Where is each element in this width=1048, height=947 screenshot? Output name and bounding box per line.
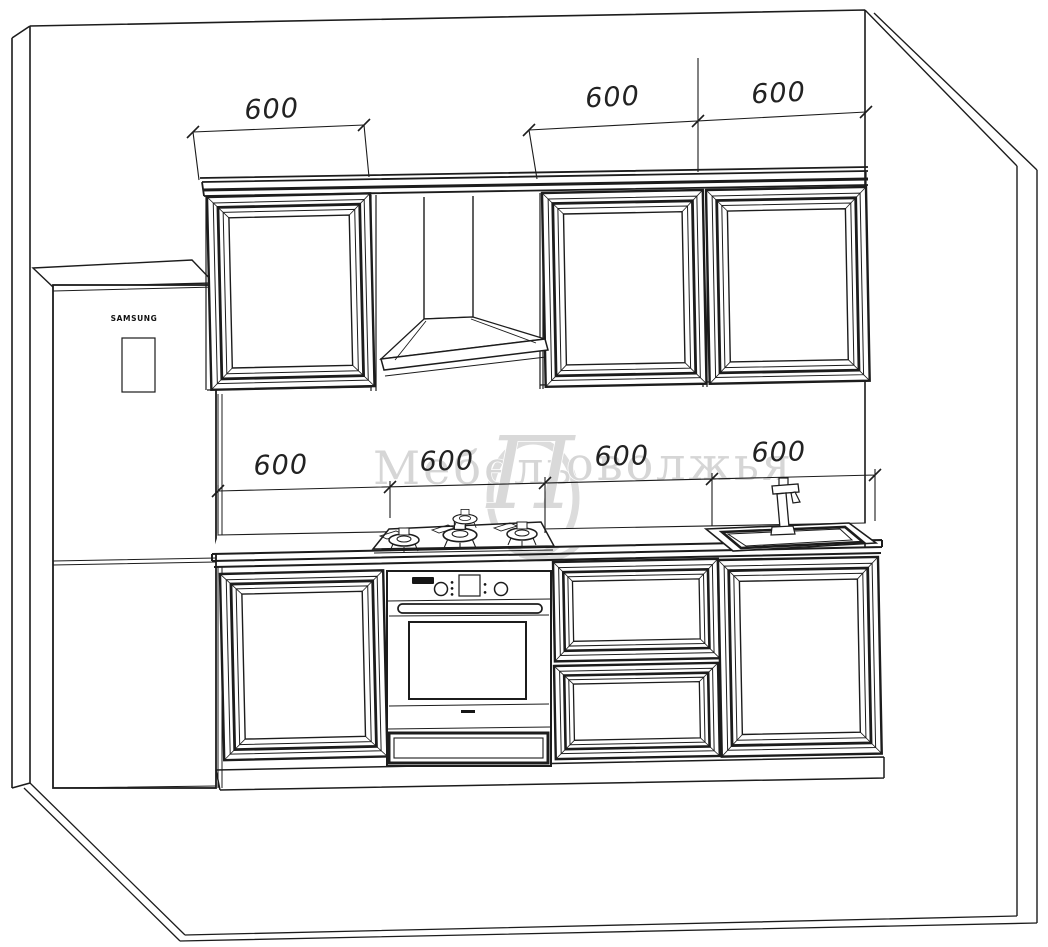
watermark-initial: П [485,415,576,532]
base-cabinet-left-door [220,570,387,760]
oven-handle [398,604,542,613]
right-side-wall [865,10,1037,923]
sink-base-cabinet-door [718,557,882,757]
faucet-spout [791,492,800,503]
fridge-brand-label: SAMSUNG [111,314,158,323]
wall-cabinet-left-door [207,193,375,390]
faucet-base [771,526,795,535]
fridge-body [53,285,216,788]
floor-edges [24,783,1037,941]
dim-label-600: 600 [585,81,641,115]
kitchen-elevation-drawing: SAMSUNG Мебель П оволжья [0,0,1048,947]
fridge: SAMSUNG [33,260,216,788]
dim-label-600: 600 [751,436,806,468]
oven [387,571,551,766]
oven-brand-logo [412,577,434,584]
dimension-top-center: 600 [523,58,866,179]
wall-cabinets [200,167,870,391]
floor [24,783,1037,941]
cooker-hood [381,196,548,376]
faucet-column [777,493,789,528]
oven-lower-label [461,710,475,713]
dimension-top-right: 600 [751,77,872,118]
fridge-top-surface [33,260,214,287]
wall-cabinet-right-door [706,187,870,384]
dim-label-600: 600 [253,449,308,481]
dim-label-600: 600 [244,93,300,126]
dimension-top-left: 600 [187,93,370,180]
drawer-front-bottom [554,663,720,759]
drawer-front-top [553,559,720,662]
dim-label-600: 600 [594,440,649,472]
dim-label-600: 600 [419,445,474,477]
dim-label-600: 600 [751,77,807,111]
dim-line [193,125,369,180]
dim-line [529,58,866,179]
hood-chimney [424,196,473,319]
wall-cabinet-center-door [542,190,706,387]
